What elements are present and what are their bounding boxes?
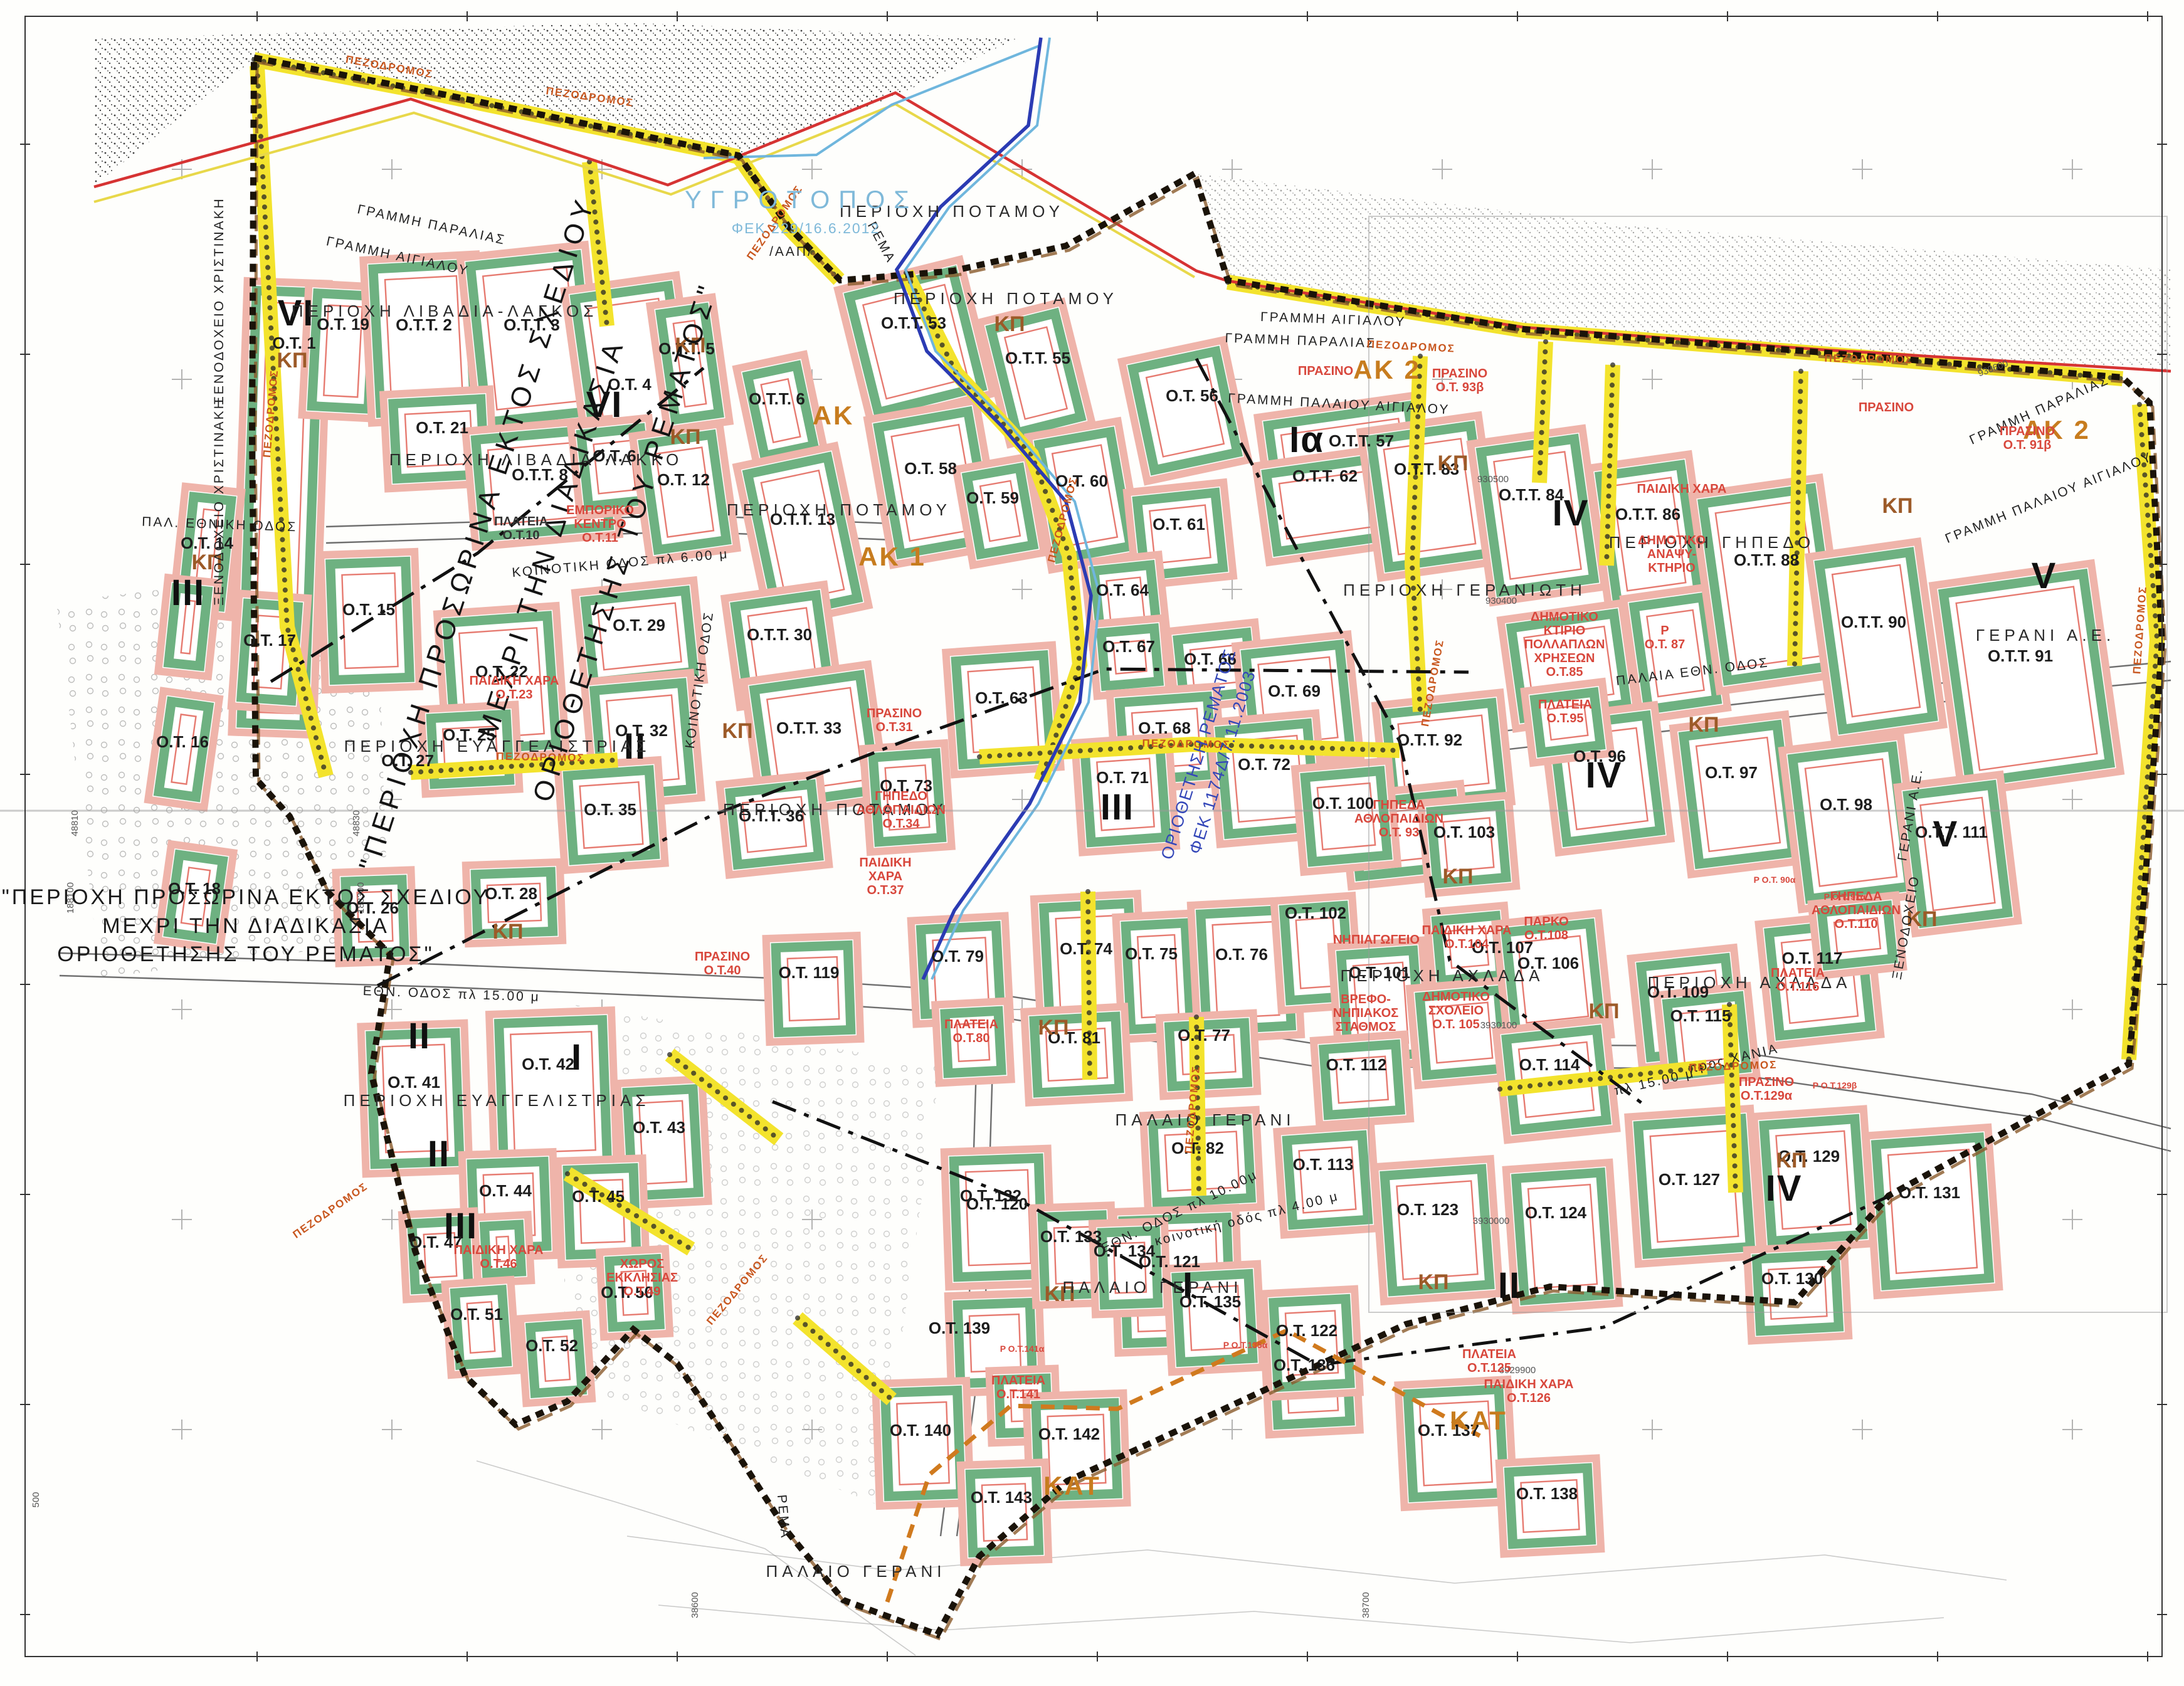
facility-label: ΠΡΑΣΙΝΟ bbox=[1298, 364, 1353, 378]
map-label-ot: Ο.Τ.Τ. 86 bbox=[1615, 505, 1680, 524]
map-label-num: 3930000 bbox=[1473, 1216, 1509, 1226]
facility-label: ΠΡΑΣΙΝΟΟ.Τ. 91β bbox=[2000, 424, 2055, 452]
map-label-zoneBig: ΑΚ 1 bbox=[858, 542, 926, 571]
map-label-ot: Ο.Τ. 75 bbox=[1125, 944, 1178, 963]
map-label-ot: Ο.Τ. 113 bbox=[1293, 1155, 1354, 1174]
map-label-zoneBig: ΚΑΤ bbox=[1043, 1471, 1101, 1500]
map-label-zone: ΚΠ bbox=[1776, 1149, 1807, 1172]
map-label-ot: Ο.Τ. 98 bbox=[1820, 795, 1872, 814]
map-label-ot: Ο.Τ.Τ. 57 bbox=[1329, 431, 1394, 450]
map-label-ot: Ο.Τ. 133 bbox=[1040, 1227, 1102, 1246]
survey-coordinate-label: 48810 bbox=[70, 810, 80, 836]
map-label-ot: Ο.Τ.Τ. 30 bbox=[747, 625, 812, 644]
map-label-ot: Ο.Τ. 117 bbox=[1782, 949, 1843, 967]
map-label-ot: Ο.Τ. 45 bbox=[572, 1187, 625, 1206]
map-label-ot: Ο.Τ. 138 bbox=[1516, 1484, 1578, 1503]
map-label-ot: Ο.Τ. 136 bbox=[1274, 1356, 1335, 1374]
map-label-ot: Ο.Τ. 61 bbox=[1153, 515, 1205, 534]
map-label-ot: Ο.Τ. 102 bbox=[1285, 904, 1346, 922]
map-label-ot: Ο.Τ. 41 bbox=[388, 1073, 440, 1092]
map-label-area: ΠΕΡΙΟΧΗ ΠΟΤΑΜΟΥ bbox=[894, 289, 1118, 308]
map-label-ot: Ο.Τ. 115 bbox=[1670, 1006, 1731, 1025]
map-label-ot: Ο.Τ.Τ. 53 bbox=[881, 313, 946, 332]
map-label-ped: ΠΕΖΟΔΡΟΜΟΣ bbox=[1824, 352, 1912, 366]
map-label-ot: Ο.Τ.Τ. 88 bbox=[1734, 551, 1799, 569]
block-road-edge bbox=[1933, 563, 2120, 793]
frame-coordinate-label: 38700 bbox=[1361, 1592, 1371, 1618]
map-label-ot: Ο.Τ. 35 bbox=[584, 800, 636, 819]
map-label-ot: Ο.Τ.Τ. 91 bbox=[1988, 646, 2053, 665]
map-label-ot: Ο.Τ. 130 bbox=[1761, 1269, 1823, 1288]
map-label-ot: Ο.Τ. 63 bbox=[975, 688, 1028, 707]
facility-label: ΠΡΑΣΙΝΟΟ.Τ.129α bbox=[1739, 1075, 1794, 1103]
map-label-ot: Ο.Τ. 52 bbox=[525, 1336, 578, 1355]
map-label-ot: Ο.Τ. 122 bbox=[1276, 1321, 1337, 1340]
map-label-sector: II bbox=[408, 1016, 431, 1056]
map-label-tiny: P Ο.Τ.129β bbox=[1813, 1080, 1857, 1090]
map-label-area: ΠΑΛΑΙΟ ΓΕΡΑΝΙ bbox=[1116, 1110, 1295, 1129]
map-label-num: 930400 bbox=[1485, 596, 1517, 606]
map-label-area: ΓΕΡΑΝΙ Α.Ε. bbox=[1976, 626, 2115, 645]
map-label-ot: Ο.Τ.Τ. 92 bbox=[1397, 730, 1462, 749]
map-label-ot: Ο.Τ.Τ. 84 bbox=[1499, 485, 1564, 504]
map-label-zone: ΚΠ bbox=[1437, 451, 1468, 475]
map-label-zone: ΚΠ bbox=[277, 349, 307, 372]
map-label-zone: ΚΠ bbox=[492, 920, 523, 944]
map-label-ot: Ο.Τ. 74 bbox=[1060, 939, 1112, 958]
survey-coordinate-label: 48830 bbox=[351, 810, 362, 836]
map-label-ot: Ο.Τ.Τ. 90 bbox=[1841, 613, 1906, 631]
map-label-ot: Ο.Τ. 96 bbox=[1573, 747, 1626, 766]
map-label-ot: Ο.Τ. 143 bbox=[971, 1488, 1032, 1507]
map-label-ot: Ο.Τ. 132 bbox=[960, 1186, 1021, 1205]
map-label-ot: Ο.Τ.Τ. 62 bbox=[1292, 466, 1358, 485]
map-label-zone: ΚΠ bbox=[1688, 713, 1719, 737]
city-block bbox=[1277, 1125, 1378, 1235]
map-label-ot: Ο.Τ. 60 bbox=[1055, 472, 1108, 490]
map-label-num: 3930100 bbox=[1480, 1020, 1517, 1031]
map-label-area: ΠΕΡΙΟΧΗ ΓΕΡΑΝΙΩΤΗ bbox=[1343, 581, 1586, 599]
map-label-zone: ΚΠ bbox=[994, 312, 1025, 336]
map-label-area: ΠΑΛΑΙΟ ΓΕΡΑΝΙ bbox=[766, 1562, 946, 1581]
facility-label: ΠΑΙΔΙΚΗ ΧΑΡΑ bbox=[1637, 482, 1727, 496]
map-label-zone: ΚΠ bbox=[1038, 1016, 1068, 1040]
map-label-cyanSm: ΦΕΚ 229/16.6.2012 bbox=[732, 220, 880, 236]
map-label-ot: Ο.Τ. 131 bbox=[1899, 1183, 1960, 1202]
map-label-ot: Ο.Τ. 12 bbox=[657, 470, 710, 489]
map-label-sector: IV bbox=[1766, 1168, 1803, 1209]
map-label-ot: Ο.Τ. 17 bbox=[243, 631, 296, 650]
map-label-road: /ΑΑΠ/ bbox=[769, 245, 813, 259]
map-label-ot: Ο.Τ. 97 bbox=[1705, 763, 1758, 782]
map-label-ot: Ο.Τ. 56 bbox=[1166, 386, 1218, 405]
map-label-ot: Ο.Τ. 142 bbox=[1038, 1425, 1100, 1443]
map-label-ot: Ο.Τ. 29 bbox=[613, 616, 665, 635]
map-label-ot: Ο.Τ. 72 bbox=[1238, 755, 1290, 774]
map-label-ot: Ο.Τ. 123 bbox=[1397, 1200, 1459, 1219]
zoning-map-canvas: 38600387005004881018810048830188300VIVII… bbox=[0, 0, 2184, 1686]
city-block bbox=[1314, 1035, 1410, 1125]
map-label-ot: Ο.Τ. 42 bbox=[522, 1055, 574, 1073]
map-label-note: ΜΕΧΡΙ ΤΗΝ ΔΙΑΔΙΚΑΣΙΑ bbox=[102, 914, 389, 938]
map-label-tiny: P Ο.Τ.141α bbox=[1000, 1344, 1045, 1354]
city-block bbox=[520, 1314, 592, 1403]
map-label-zone: ΚΠ bbox=[722, 719, 752, 743]
map-label-ot: Ο.Τ. 71 bbox=[1096, 768, 1149, 787]
map-label-ot: Ο.Τ. 58 bbox=[904, 459, 957, 478]
facility-label: ΔΗΜΟΤΙΚΟΣΧΟΛΕΙΟΟ.Τ. 105 bbox=[1422, 990, 1490, 1031]
city-block bbox=[1809, 542, 1943, 740]
map-label-ot: Ο.Τ. 28 bbox=[485, 884, 537, 903]
map-label-sector: III bbox=[171, 572, 205, 613]
facility-label: ΠΡΑΣΙΝΟ bbox=[1859, 401, 1914, 414]
frame-coordinate-label: 38600 bbox=[690, 1592, 700, 1618]
map-label-ot: Ο.Τ. 77 bbox=[1178, 1026, 1230, 1045]
map-label-note: "ΠΕΡΙΟΧΗ ΠΡΟΣΩΡΙΝΑ ΕΚΤΟΣ ΣΧΕΔΙΟΥ bbox=[2, 885, 490, 909]
map-label-road: ΞΕΝΟΔΟΧΕΙΟ ΧΡΙΣΤΙΝΑΚΗ bbox=[212, 398, 226, 606]
map-label-ot: Ο.Τ. 21 bbox=[416, 418, 468, 437]
city-block bbox=[1933, 563, 2120, 793]
map-label-ot: Ο.Τ. 44 bbox=[479, 1181, 532, 1200]
map-label-ot: Ο.Τ. 68 bbox=[1138, 719, 1191, 737]
map-label-ot: Ο.Τ. 76 bbox=[1215, 945, 1268, 964]
map-label-ot: Ο.Τ.Τ. 33 bbox=[776, 719, 841, 737]
map-label-sector: II bbox=[428, 1134, 450, 1174]
map-label-area: ΠΑΛΑΙΟ ΓΕΡΑΝΙ bbox=[1063, 1278, 1243, 1297]
map-label-ot: Ο.Τ. 79 bbox=[931, 947, 984, 966]
facility-label: ΠΛΑΤΕΙΑΟ.Τ.116 bbox=[1771, 966, 1825, 994]
map-label-area: ΠΕΡΙΟΧΗ ΠΟΤΑΜΟΥ bbox=[727, 500, 951, 519]
city-block bbox=[1499, 1458, 1601, 1554]
map-label-sector: V bbox=[2032, 556, 2057, 596]
city-block bbox=[766, 935, 861, 1042]
map-label-ot: Ο.Τ. 51 bbox=[450, 1305, 503, 1324]
map-label-zoneBig: ΑΚ 2 bbox=[1353, 355, 1421, 384]
map-label-ot: Ο.Τ.Τ. 55 bbox=[1005, 349, 1070, 367]
map-label-road: ΞΕΝΟΔΟΧΕΙΟ ΧΡΙΣΤΙΝΑΚΗ bbox=[212, 197, 226, 405]
facility-label: ΠΡΑΣΙΝΟΟ.Τ. 93β bbox=[1432, 367, 1487, 394]
map-label-ot: Ο.Τ.Τ. 6 bbox=[749, 389, 805, 408]
map-label-ot: Ο.Τ. 15 bbox=[342, 600, 395, 619]
map-label-ot: Ο.Τ. 67 bbox=[1102, 637, 1155, 656]
facility-label: ΒΡΕΦΟ-ΝΗΠΙΑΚΟΣΣΤΑΘΜΟΣ bbox=[1333, 993, 1398, 1034]
map-label-zoneBig: ΑΚ bbox=[813, 401, 855, 430]
map-label-cyan: ΥΓΡΟΤΟΠΟΣ bbox=[685, 186, 918, 214]
map-label-zone: ΚΠ bbox=[1418, 1270, 1448, 1294]
map-label-sector: III bbox=[1100, 787, 1134, 828]
facility-label: ΝΗΠΙΑΓΩΓΕΙΟ bbox=[1333, 933, 1420, 947]
map-label-ot: Ο.Τ. 124 bbox=[1525, 1203, 1587, 1222]
map-label-ot: Ο.Τ. 43 bbox=[633, 1118, 685, 1137]
map-label-ot: Ο.Τ. 114 bbox=[1519, 1055, 1580, 1074]
map-label-ot: Ο.Τ. 69 bbox=[1268, 682, 1321, 700]
facility-label: ΠΛΑΤΕΙΑΟ.Τ.141 bbox=[991, 1374, 1045, 1401]
map-label-zone: ΚΠ bbox=[1588, 999, 1619, 1023]
facility-label: ΠΑΡΚΟΟ.Τ.108 bbox=[1524, 915, 1568, 942]
map-label-ot: Ο.Τ. 139 bbox=[929, 1319, 990, 1337]
map-label-ot: Ο.Τ. 127 bbox=[1659, 1170, 1720, 1189]
map-label-zone: ΚΠ bbox=[1442, 865, 1473, 888]
map-label-ot: Ο.Τ.Τ. 111 bbox=[1915, 823, 1988, 841]
map-label-zone: ΚΠ bbox=[1882, 494, 1912, 518]
map-label-sector: Ια bbox=[1289, 419, 1324, 460]
city-block bbox=[1122, 340, 1248, 481]
map-label-ot: Ο.Τ. 119 bbox=[779, 963, 840, 982]
facility-label: ΔΗΜΟΤΙΚΟΑΝΑΨΥ-ΚΤΗΡΙΟ bbox=[1638, 534, 1706, 575]
map-label-ot: Ο.Τ. 140 bbox=[890, 1421, 951, 1440]
map-label-tiny: P Ο.Τ.135α bbox=[1223, 1340, 1268, 1350]
map-label-zoneBig: ΚΑΤ bbox=[1450, 1406, 1507, 1435]
map-label-ot: Ο.Τ. 112 bbox=[1326, 1055, 1387, 1074]
city-block bbox=[1673, 714, 1803, 874]
frame-coordinate-label: 500 bbox=[31, 1492, 41, 1507]
map-label-ot: Ο.Τ. 82 bbox=[1171, 1139, 1224, 1157]
map-label-num: 930500 bbox=[1477, 474, 1509, 485]
map-label-ot: Ο.Τ. 16 bbox=[156, 732, 209, 751]
map-label-area: ΠΕΡΙΟΧΗ ΑΧΛΑΔΑ bbox=[1341, 966, 1544, 985]
map-label-note: ΟΡΙΟΘΕΤΗΣΗΣ ΤΟΥ ΡΕΜΑΤΟΣ" bbox=[57, 942, 434, 966]
facility-label: ΠΛΑΤΕΙΑΟ.Τ.125 bbox=[1462, 1347, 1516, 1375]
city-block bbox=[1091, 618, 1169, 697]
map-label-ot: Ο.Τ. 59 bbox=[966, 488, 1019, 507]
zoning-map-sheet: 38600387005004881018810048830188300VIVII… bbox=[0, 0, 2184, 1686]
map-label-ot: Ο.Τ. 64 bbox=[1096, 581, 1149, 599]
map-label-sector: II bbox=[1498, 1265, 1521, 1306]
map-label-tiny: P Ο.Τ. 90α bbox=[1754, 875, 1796, 885]
map-label-ot: Ο.Τ. 100 bbox=[1312, 794, 1374, 813]
map-label-area: ΠΕΡΙΟΧΗ ΕΥΑΓΓΕΛΙΣΤΡΙΑΣ bbox=[344, 1091, 650, 1110]
